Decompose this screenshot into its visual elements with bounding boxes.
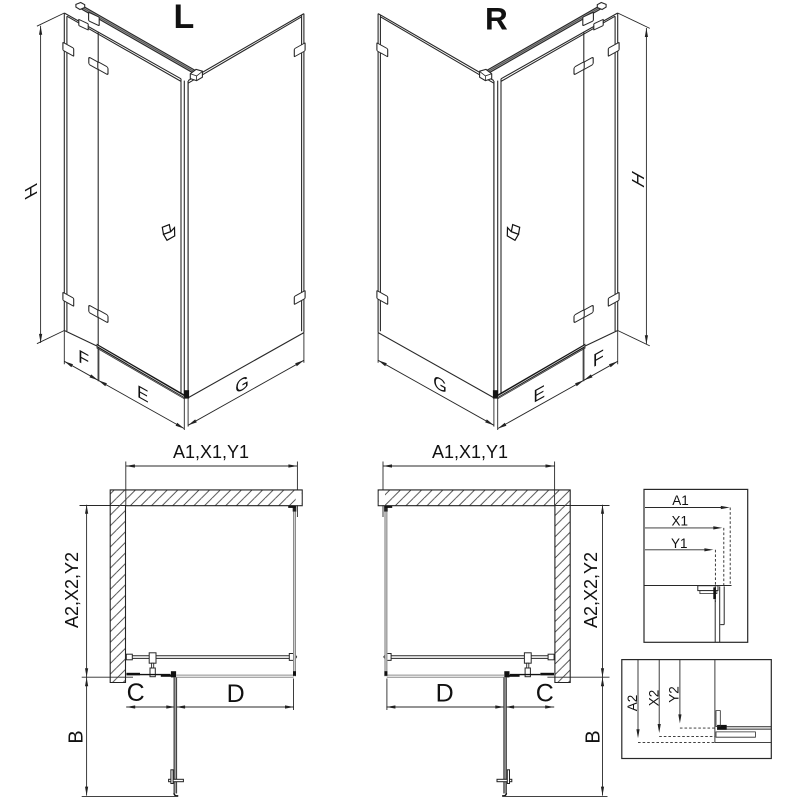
svg-text:A2: A2 xyxy=(625,695,640,712)
svg-text:Y2: Y2 xyxy=(667,686,682,703)
svg-text:A2,X2,Y2: A2,X2,Y2 xyxy=(62,552,82,628)
svg-text:C: C xyxy=(127,679,145,707)
svg-text:A1,X1,Y1: A1,X1,Y1 xyxy=(432,442,508,462)
svg-text:R: R xyxy=(485,1,508,37)
svg-text:D: D xyxy=(227,680,245,708)
svg-text:X2: X2 xyxy=(646,690,661,707)
svg-text:Y1: Y1 xyxy=(671,536,688,551)
svg-text:D: D xyxy=(436,680,454,708)
svg-text:L: L xyxy=(174,0,195,36)
svg-text:A1: A1 xyxy=(672,493,689,508)
svg-text:B: B xyxy=(66,730,88,743)
svg-text:C: C xyxy=(536,680,554,708)
svg-text:A2,X2,Y2: A2,X2,Y2 xyxy=(581,552,601,628)
svg-text:A1,X1,Y1: A1,X1,Y1 xyxy=(173,442,249,462)
svg-text:B: B xyxy=(583,730,605,743)
svg-text:X1: X1 xyxy=(672,514,689,529)
